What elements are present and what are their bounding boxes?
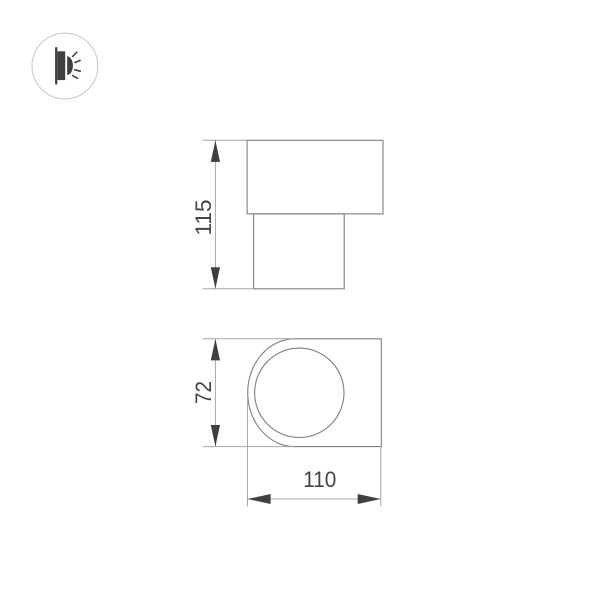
svg-text:115: 115 (191, 200, 216, 236)
svg-text:72: 72 (191, 381, 216, 404)
svg-text:110: 110 (303, 467, 336, 492)
